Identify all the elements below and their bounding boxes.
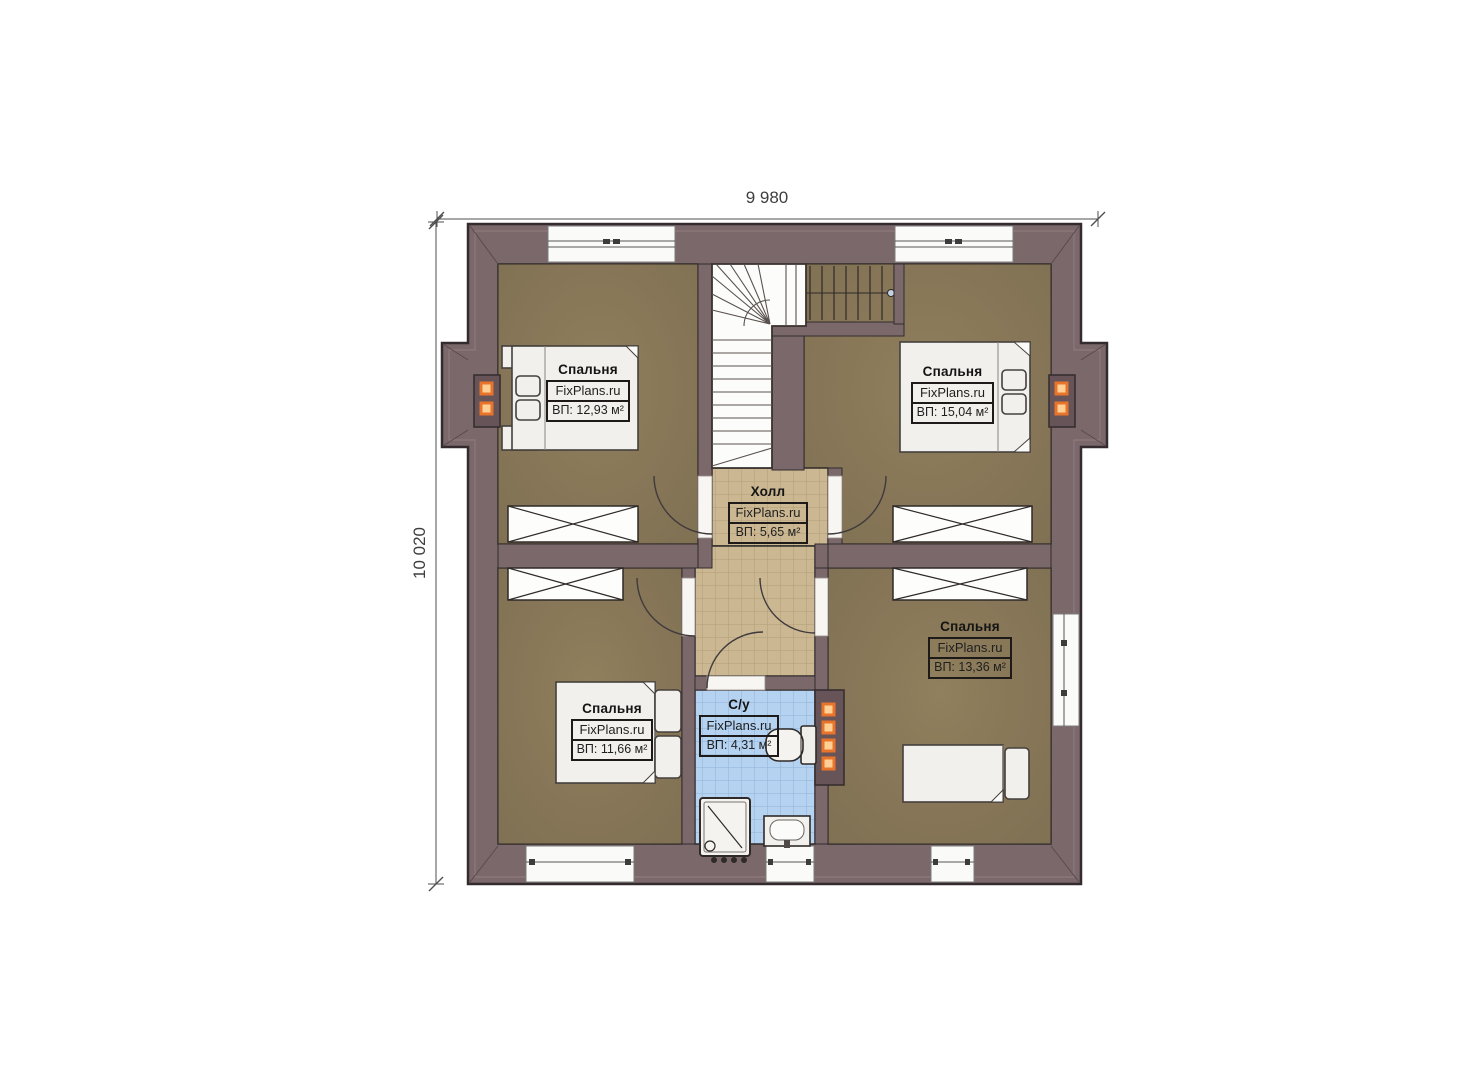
chimney-bathroom (815, 690, 844, 785)
chimney-left (474, 375, 500, 427)
dimension-line-left (428, 215, 444, 891)
bed-top-left (502, 346, 638, 450)
bed-bottom-left (556, 682, 681, 783)
bed-top-right (900, 342, 1030, 452)
window-bottom-middle (766, 846, 814, 882)
wardrobe-left-lower (508, 568, 623, 600)
chimney-right (1049, 375, 1075, 427)
window-right-side (1053, 614, 1079, 726)
wardrobe-right-upper (893, 506, 1032, 542)
floorplan-drawing (0, 0, 1473, 1080)
wardrobe-right-lower (893, 568, 1027, 600)
dimension-height-label: 10 020 (410, 507, 430, 599)
wardrobe-left-upper (508, 506, 638, 542)
window-top-left (548, 226, 675, 262)
toilet (766, 726, 816, 764)
window-bottom-left (526, 846, 634, 882)
window-bottom-right (931, 846, 974, 882)
shower (700, 798, 750, 863)
dimension-width-label: 9 980 (727, 188, 807, 208)
floorplan-canvas: 9 980 10 020 Спальня FixPlans.ru ВП: 12,… (0, 0, 1473, 1080)
sink (764, 816, 810, 848)
bed-bottom-right (903, 745, 1029, 802)
window-top-right (895, 226, 1013, 262)
hall-floor (695, 468, 828, 676)
